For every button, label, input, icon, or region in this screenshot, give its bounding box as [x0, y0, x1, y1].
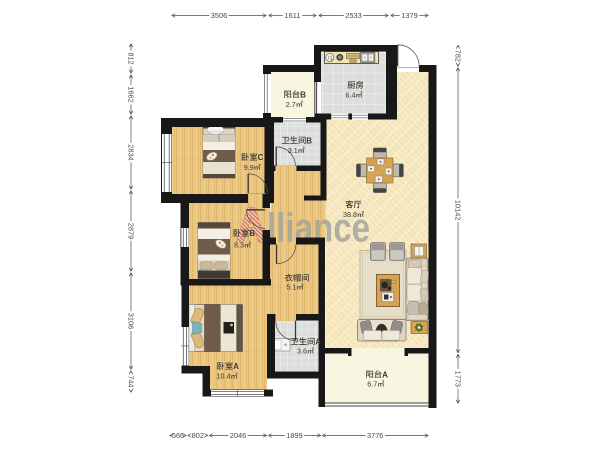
svg-text:1611: 1611 [285, 11, 301, 20]
svg-text:9: 9 [250, 163, 254, 172]
svg-text:2879: 2879 [126, 223, 135, 239]
svg-text:B: B [249, 229, 255, 238]
svg-text:1: 1 [294, 146, 298, 155]
svg-text:B: B [300, 90, 306, 99]
svg-text:782: 782 [453, 50, 462, 62]
svg-text:10142: 10142 [453, 200, 462, 221]
svg-text:4: 4 [227, 372, 231, 381]
svg-text:3776: 3776 [367, 431, 383, 440]
svg-text:2046: 2046 [230, 431, 246, 440]
svg-text:1379: 1379 [401, 11, 417, 20]
svg-text:C: C [258, 153, 264, 162]
svg-text:802: 802 [192, 431, 204, 440]
svg-text:7: 7 [373, 380, 377, 389]
svg-text:812: 812 [126, 52, 135, 64]
svg-text:3506: 3506 [211, 11, 227, 20]
svg-text:566: 566 [172, 431, 184, 440]
svg-text:6: 6 [303, 347, 307, 356]
svg-text:7: 7 [292, 100, 296, 109]
svg-text:2834: 2834 [126, 144, 135, 160]
svg-text:2533: 2533 [345, 11, 361, 20]
svg-text:1: 1 [293, 283, 297, 292]
svg-text:1773: 1773 [453, 371, 462, 387]
svg-text:A: A [233, 362, 239, 371]
svg-text:3: 3 [240, 241, 244, 250]
svg-text:3106: 3106 [126, 313, 135, 329]
svg-text:4: 4 [352, 90, 356, 99]
svg-text:B: B [306, 136, 312, 145]
svg-text:A: A [315, 338, 321, 347]
svg-text:1662: 1662 [126, 86, 135, 102]
svg-text:A: A [382, 370, 388, 379]
svg-text:744: 744 [126, 375, 135, 387]
svg-text:1899: 1899 [286, 431, 302, 440]
svg-text:8: 8 [353, 210, 357, 219]
